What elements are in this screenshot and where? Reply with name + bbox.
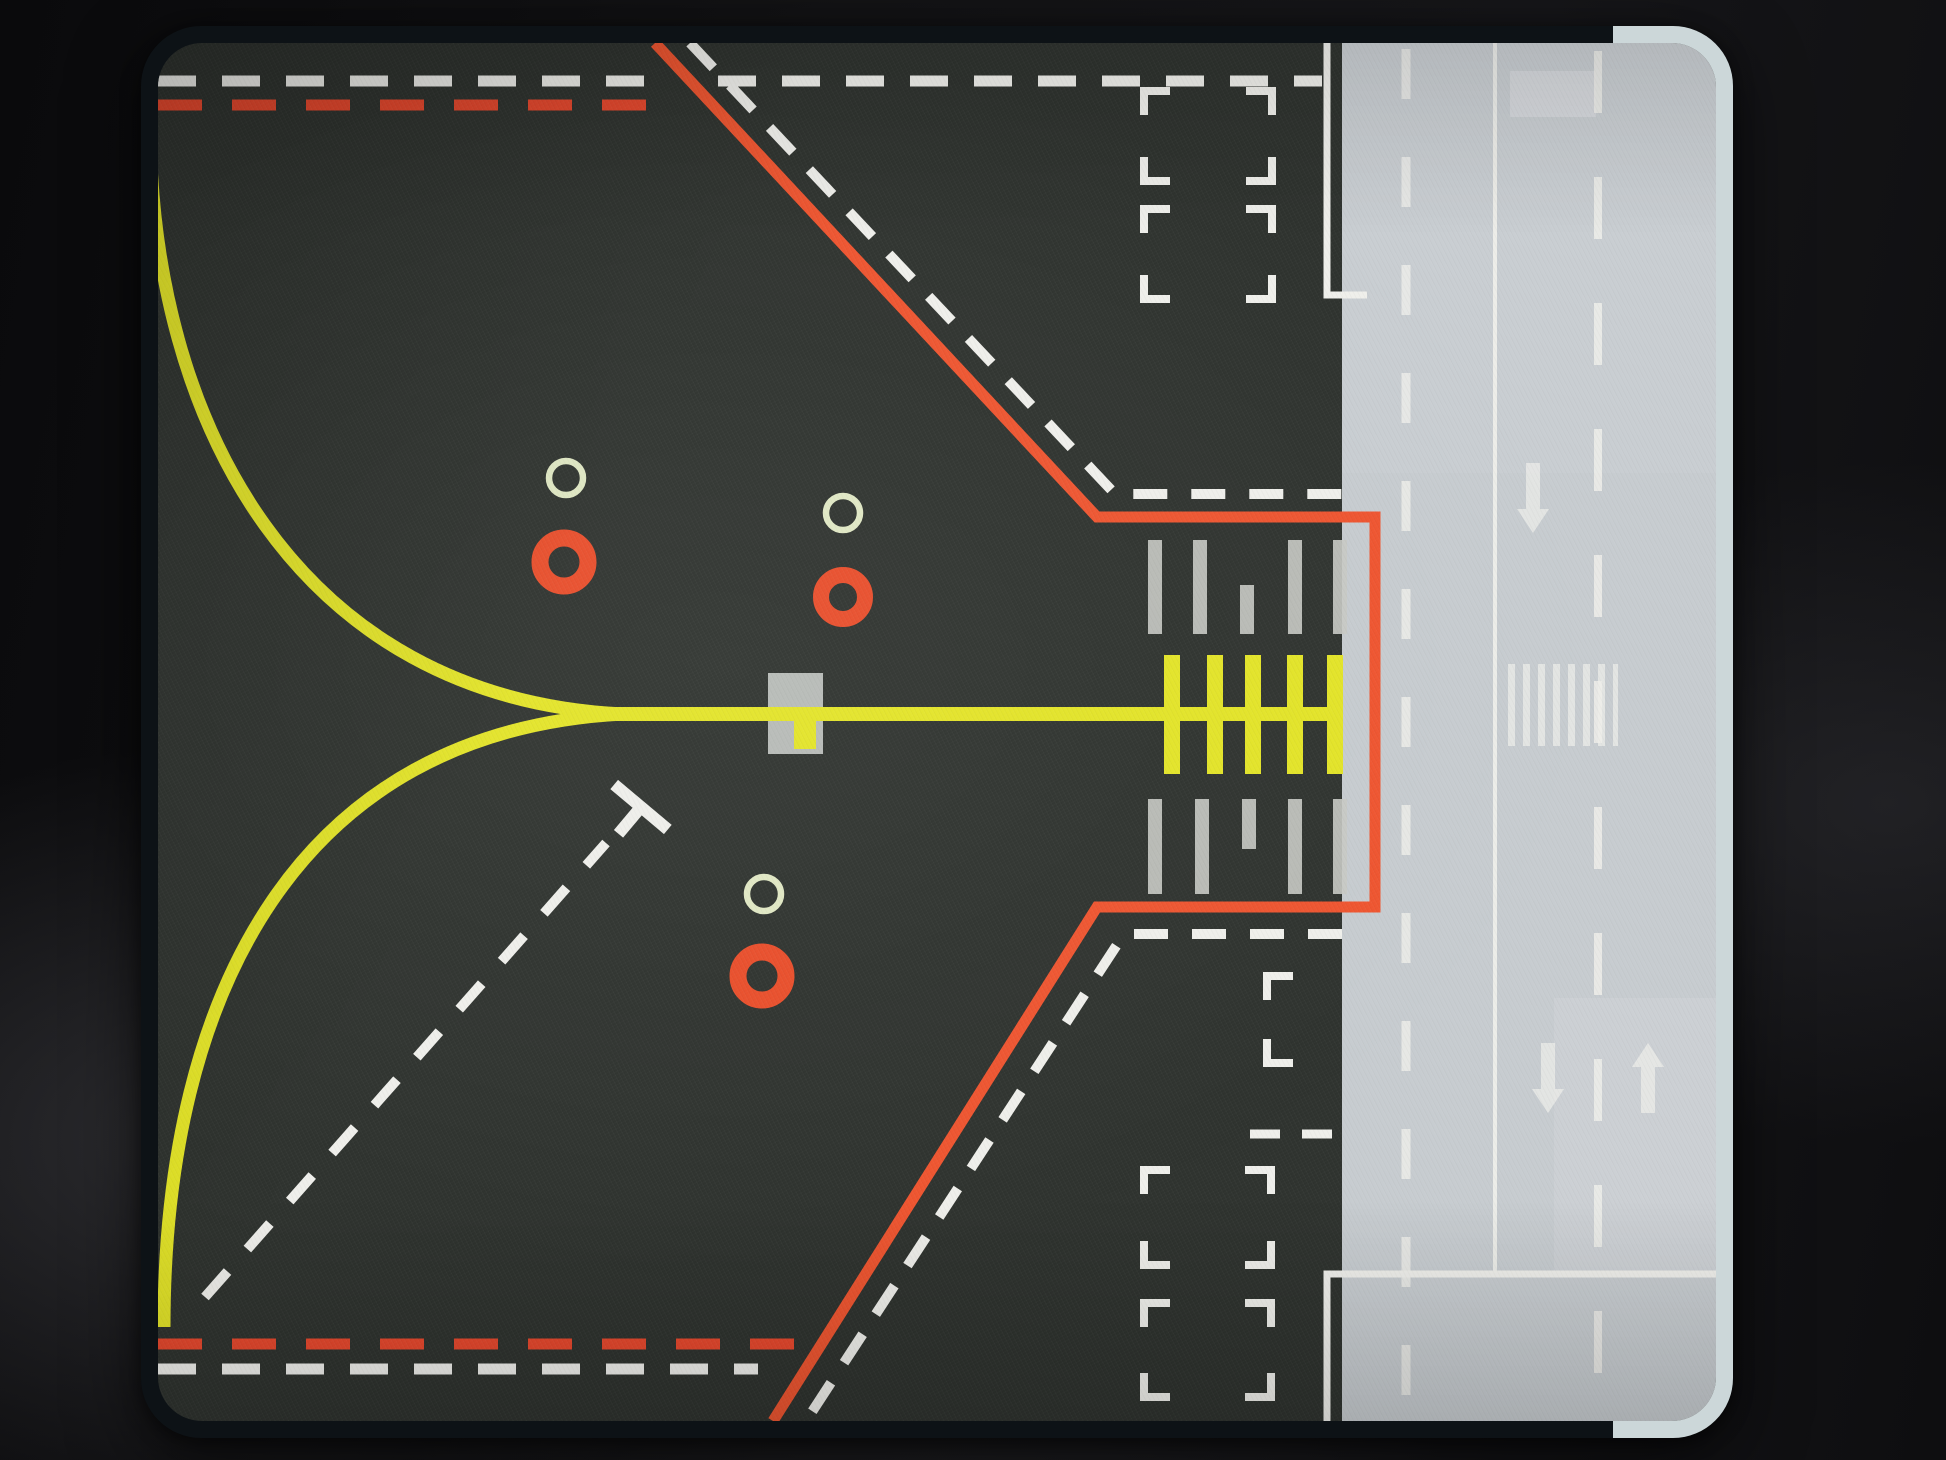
centerline-notch <box>794 719 816 749</box>
hold-bar <box>1288 540 1302 634</box>
taxiway-centerline-upper-curve <box>158 121 623 714</box>
white-dashed-diagonal-bottom <box>806 934 1342 1421</box>
position-ring-orange-2 <box>821 575 865 619</box>
taxiway-diagram-print <box>158 43 1716 1421</box>
runway-strip <box>1342 43 1716 1421</box>
hold-bar <box>1333 540 1347 634</box>
hold-bar-short <box>1240 585 1254 634</box>
t-bar-stem <box>614 807 642 838</box>
corner-brackets-bottom-set <box>1144 976 1293 1397</box>
photo-background <box>0 0 1946 1460</box>
position-ring-pale-1 <box>549 461 583 495</box>
crosswalk-zebra-band <box>1506 664 1618 746</box>
hold-bar <box>1148 799 1162 894</box>
position-ring-orange-1 <box>540 538 588 586</box>
airport-markings-graphic <box>158 43 1716 1421</box>
hold-bar <box>1193 540 1207 634</box>
position-ring-orange-3 <box>738 952 786 1000</box>
hold-boundary-orange-line <box>655 43 1375 1421</box>
hold-bar-short <box>1242 799 1256 849</box>
runway-light-patch-bottom <box>1554 998 1716 1274</box>
hold-bar <box>1288 799 1302 894</box>
runway-light-patch-top <box>1510 71 1596 117</box>
position-ring-pale-3 <box>747 877 781 911</box>
hold-bar <box>1148 540 1162 634</box>
hold-bar <box>1195 799 1209 894</box>
corner-brackets-top-set <box>1144 91 1272 299</box>
hold-bar <box>1333 799 1347 894</box>
taxiway-centerline-lower-curve <box>164 714 623 1327</box>
mousepad <box>141 26 1733 1438</box>
position-ring-pale-2 <box>826 496 860 530</box>
hold-position-bars-top <box>1148 540 1347 634</box>
hold-position-bars-bottom <box>1148 799 1347 894</box>
